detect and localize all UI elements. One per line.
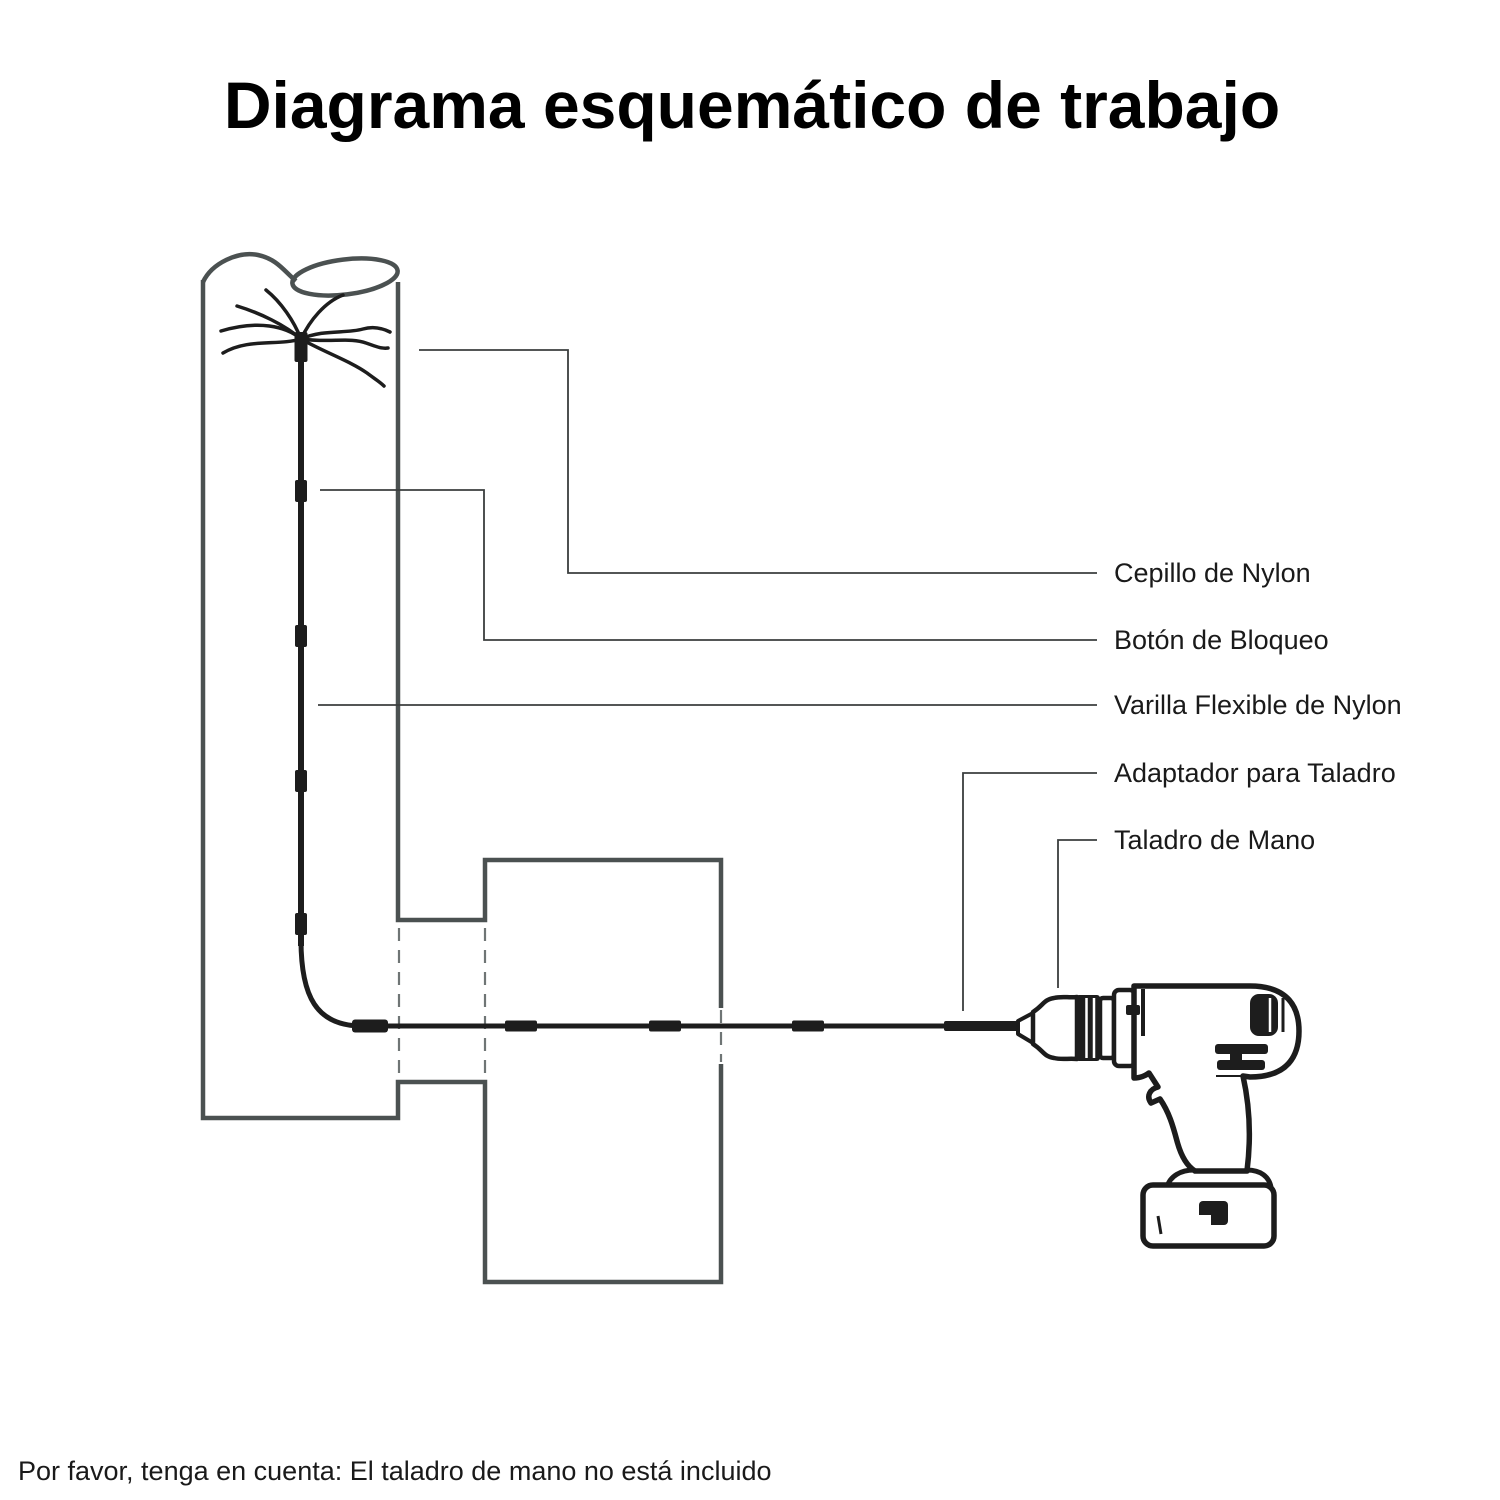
flexible-rod: [295, 344, 1020, 1033]
rod-connector-horizontal-2: [649, 1021, 681, 1032]
hand-drill: [1018, 986, 1299, 1246]
work-schematic-diagram: Diagrama esquemático de trabajo Cepillo …: [0, 0, 1500, 1500]
battery-latch-notch: [1199, 1215, 1211, 1225]
label-drill-adapter: Adaptador para Taladro: [1114, 758, 1396, 788]
duct-right-wall: [398, 282, 721, 1008]
label-flexible-nylon-rod: Varilla Flexible de Nylon: [1114, 690, 1402, 720]
label-lock-button: Botón de Bloqueo: [1114, 625, 1329, 655]
drill-gear-selector-nub: [1126, 1005, 1140, 1015]
rod-connector-lock-button-4: [295, 913, 307, 935]
leader-drill-adapter: [963, 773, 1097, 1011]
rod-connector-lock-button-3: [295, 770, 307, 792]
drill-motor-vent: [1250, 994, 1278, 1036]
schematic-page: Diagrama esquemático de trabajo Cepillo …: [0, 0, 1500, 1500]
brush-bristle: [223, 339, 301, 353]
brush-ferrule: [295, 332, 308, 362]
leader-nylon-brush: [419, 350, 1097, 573]
part-labels: Cepillo de Nylon Botón de Bloqueo Varill…: [1114, 558, 1402, 855]
pipe-opening-ellipse: [290, 253, 399, 301]
hidden-edges: [399, 928, 721, 1076]
label-nylon-brush: Cepillo de Nylon: [1114, 558, 1311, 588]
drill-chuck-ribbed-band: [1076, 995, 1100, 1061]
rod-connector-lock-button-1: [295, 480, 307, 502]
rod-connector-horizontal-3: [792, 1021, 824, 1032]
wall-structure: [203, 253, 721, 1282]
leader-lines: [318, 350, 1097, 1011]
leader-hand-drill: [1058, 840, 1097, 988]
footer-note: Por favor, tenga en cuenta: El taladro d…: [18, 1456, 772, 1486]
rod-connector-horizontal-1: [505, 1021, 537, 1032]
rod-end-coupler: [352, 1020, 388, 1033]
page-title: Diagrama esquemático de trabajo: [224, 68, 1280, 142]
duct-left-wall: [203, 280, 721, 1282]
rod-bend-horizontal-section: [301, 940, 1020, 1026]
drill-chuck: [1033, 997, 1077, 1059]
drill-side-vent-bridge: [1230, 1052, 1242, 1062]
drill-adapter-segment: [944, 1021, 1020, 1031]
leader-lock-button: [320, 490, 1097, 640]
brush-bristle: [266, 290, 301, 339]
nylon-brush: [221, 290, 390, 386]
pipe-rim-wave: [203, 254, 296, 282]
rod-connector-lock-button-2: [295, 625, 307, 647]
brush-bristle: [221, 325, 301, 339]
label-hand-drill: Taladro de Mano: [1114, 825, 1315, 855]
brush-bristle: [301, 328, 390, 339]
